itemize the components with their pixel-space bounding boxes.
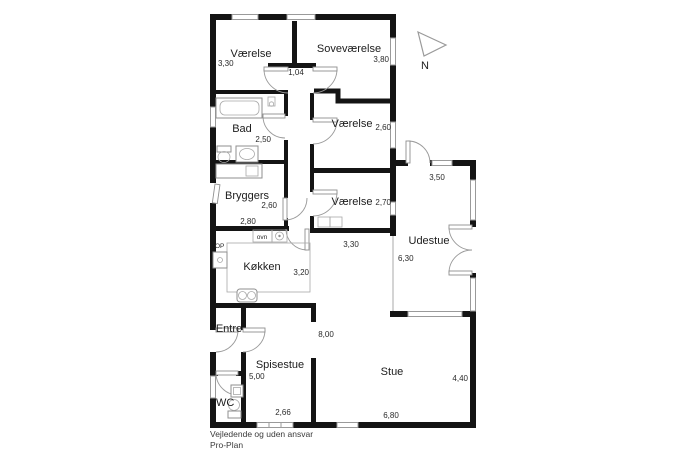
bathroom-sink-icon xyxy=(236,146,258,162)
room-label-entre: Entre xyxy=(216,323,242,335)
dim-bryggers-b: 2,80 xyxy=(240,217,256,226)
room-label-udestue: Udestue xyxy=(409,235,450,247)
dim-stue-a: 4,40 xyxy=(452,374,468,383)
utility-counter-icon xyxy=(216,164,262,178)
window-icon xyxy=(432,159,452,167)
dim-hall-top: 1,04 xyxy=(288,68,304,77)
dim-sovevaerelse: 3,80 xyxy=(373,55,389,64)
footer: Vejledende og uden ansvar Pro-Plan xyxy=(210,429,313,450)
room-label-vaerelse-s: Værelse xyxy=(332,196,373,208)
stairs-up-label: OP xyxy=(215,243,224,250)
room-label-koekken: Køkken xyxy=(243,261,280,273)
room-label-spisestue: Spisestue xyxy=(256,359,304,371)
window-icon xyxy=(469,180,477,220)
oven-label: ovn xyxy=(257,234,268,241)
stepped-wall xyxy=(314,91,392,101)
dim-koekken: 3,20 xyxy=(293,268,309,277)
drain-icon xyxy=(268,97,275,106)
floor-plan-drawing: N Værelse 3,30 Soveværelse 3,80 1,04 Bad… xyxy=(0,0,687,457)
stove-icon xyxy=(213,252,227,268)
dim-hall: 8,00 xyxy=(318,330,334,339)
window-icon xyxy=(232,13,258,21)
door-swing-icon xyxy=(264,67,288,93)
disclaimer-text: Vejledende og uden ansvar xyxy=(210,429,313,439)
door-swing-icon xyxy=(286,229,309,250)
brand-text: Pro-Plan xyxy=(210,440,243,450)
wc-sink-icon xyxy=(231,385,243,397)
dim-vaerelse-s: 2,70 xyxy=(375,198,391,207)
room-label-stue: Stue xyxy=(381,366,404,378)
dim-spisestue-b: 2,66 xyxy=(275,408,291,417)
north-arrow-icon xyxy=(418,32,446,56)
window-icon xyxy=(287,13,315,21)
window-icon xyxy=(209,376,217,398)
window-icon xyxy=(469,278,477,311)
door-leaf-icon xyxy=(210,183,220,204)
dim-udestue-a: 6,30 xyxy=(398,254,414,263)
dim-stue-b: 6,80 xyxy=(383,411,399,420)
dim-udestue-b: 3,50 xyxy=(429,173,445,182)
room-label-vaerelse-mid: Værelse xyxy=(332,118,373,130)
compass-north-label: N xyxy=(421,60,429,72)
kitchen-sink-icon xyxy=(237,289,257,302)
dim-bad: 2,50 xyxy=(255,135,271,144)
window-icon xyxy=(389,38,397,65)
window-icon xyxy=(257,421,293,429)
dim-vaerelse-mid: 2,60 xyxy=(375,123,391,132)
wardrobe-icon xyxy=(318,217,342,227)
floor-plan-page: N Værelse 3,30 Soveværelse 3,80 1,04 Bad… xyxy=(0,0,687,457)
door-swing-icon xyxy=(283,198,307,220)
dim-vaerelse-nw: 3,30 xyxy=(218,59,234,68)
room-label-sovevaerelse: Soveværelse xyxy=(317,43,381,55)
bathtub-icon xyxy=(216,98,262,118)
room-label-vaerelse-nw: Værelse xyxy=(231,48,272,60)
door-swing-icon xyxy=(406,141,430,166)
room-label-wc: WC xyxy=(216,397,234,409)
room-label-bad: Bad xyxy=(232,123,252,135)
door-swing-icon xyxy=(243,328,265,352)
window-icon xyxy=(408,310,462,318)
dim-bryggers-a: 2,60 xyxy=(261,201,277,210)
dim-gang: 3,30 xyxy=(343,240,359,249)
window-icon xyxy=(337,421,358,429)
dim-spisestue-a: 5,00 xyxy=(249,372,265,381)
french-door-icon xyxy=(449,225,476,275)
